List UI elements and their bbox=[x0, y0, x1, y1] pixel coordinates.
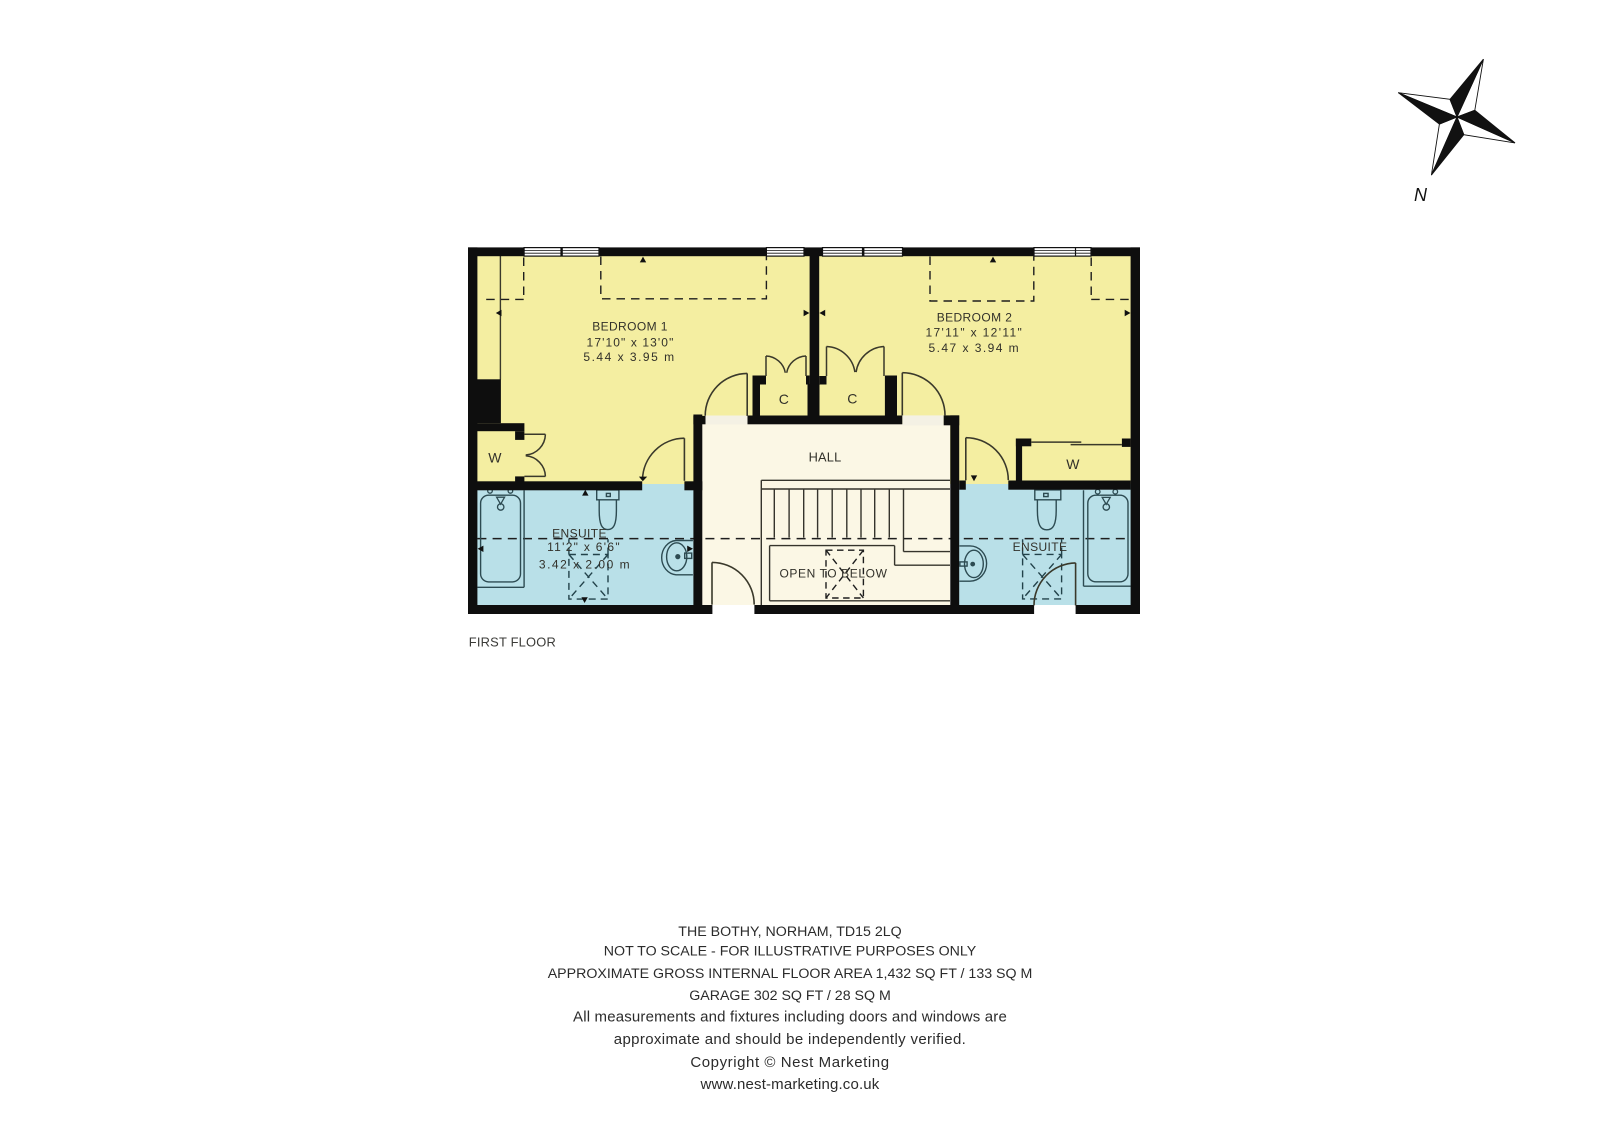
svg-text:BEDROOM 2: BEDROOM 2 bbox=[937, 311, 1013, 325]
svg-text:ENSUITE: ENSUITE bbox=[552, 527, 607, 541]
svg-text:5.47 x 3.94 m: 5.47 x 3.94 m bbox=[929, 341, 1021, 355]
svg-text:ENSUITE: ENSUITE bbox=[1013, 540, 1068, 554]
svg-text:approximate and should be inde: approximate and should be independently … bbox=[614, 1031, 966, 1048]
svg-text:HALL: HALL bbox=[809, 449, 842, 464]
svg-text:C: C bbox=[847, 391, 858, 407]
svg-text:All measurements and fixtures: All measurements and fixtures including … bbox=[573, 1008, 1007, 1025]
svg-text:N: N bbox=[1414, 185, 1428, 205]
svg-text:OPEN TO BELOW: OPEN TO BELOW bbox=[779, 567, 887, 581]
svg-text:GARAGE 302 SQ FT / 28 SQ M: GARAGE 302 SQ FT / 28 SQ M bbox=[689, 988, 891, 1004]
svg-text:3.42 x 2.00 m: 3.42 x 2.00 m bbox=[539, 558, 631, 572]
svg-text:5.44 x 3.95 m: 5.44 x 3.95 m bbox=[583, 350, 675, 364]
svg-text:W: W bbox=[488, 449, 502, 465]
svg-text:NOT TO SCALE - FOR ILLUSTRATIV: NOT TO SCALE - FOR ILLUSTRATIVE PURPOSES… bbox=[604, 943, 977, 959]
svg-text:W: W bbox=[1066, 456, 1080, 472]
svg-text:THE BOTHY, NORHAM, TD15 2LQ: THE BOTHY, NORHAM, TD15 2LQ bbox=[678, 924, 901, 940]
svg-text:APPROXIMATE GROSS INTERNAL FLO: APPROXIMATE GROSS INTERNAL FLOOR AREA 1,… bbox=[548, 966, 1033, 982]
svg-text:17'11" x 12'11": 17'11" x 12'11" bbox=[925, 326, 1023, 340]
svg-text:C: C bbox=[779, 391, 790, 407]
svg-text:FIRST FLOOR: FIRST FLOOR bbox=[469, 635, 556, 650]
svg-text:17'10" x 13'0": 17'10" x 13'0" bbox=[587, 336, 675, 350]
svg-text:BEDROOM 1: BEDROOM 1 bbox=[592, 320, 668, 334]
svg-text:www.nest-marketing.co.uk: www.nest-marketing.co.uk bbox=[700, 1076, 880, 1093]
svg-text:Copyright © Nest Marketing: Copyright © Nest Marketing bbox=[690, 1054, 889, 1071]
svg-text:11'2" x 6'6": 11'2" x 6'6" bbox=[547, 540, 621, 554]
